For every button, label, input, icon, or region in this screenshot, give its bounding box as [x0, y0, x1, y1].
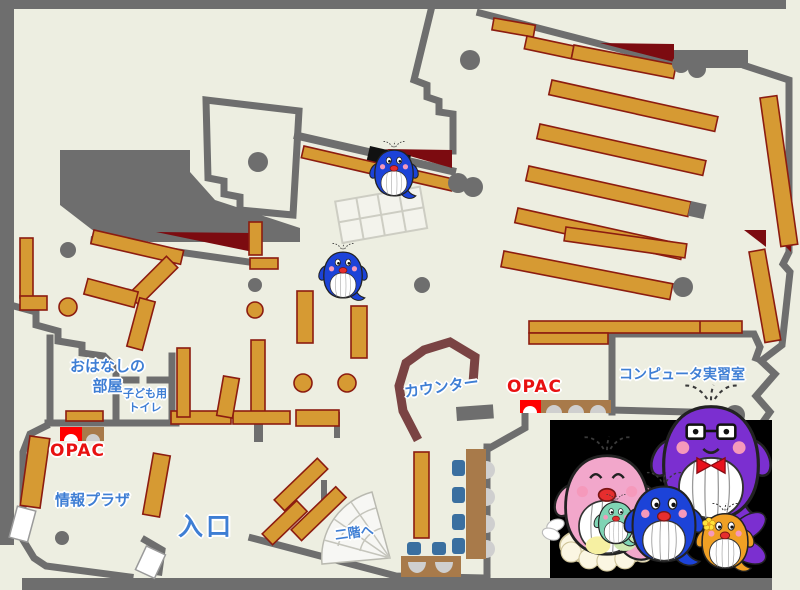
opac-station-left [60, 427, 104, 441]
library-floor-map: おはなしの 部屋 子ども用 トイレ OPAC 情報プラザ 入口 カウンター OP… [0, 0, 800, 590]
label-info-plaza: 情報プラザ [55, 491, 130, 511]
label-entrance: 入口 [178, 511, 234, 544]
label-kids-toilet: 子ども用 トイレ [112, 387, 178, 416]
label-opac-right: OPAC [507, 376, 562, 398]
label-opac-left: OPAC [50, 440, 105, 462]
label-computer-room: コンピュータ実習室 [619, 366, 745, 384]
opac-station-right [520, 400, 611, 413]
